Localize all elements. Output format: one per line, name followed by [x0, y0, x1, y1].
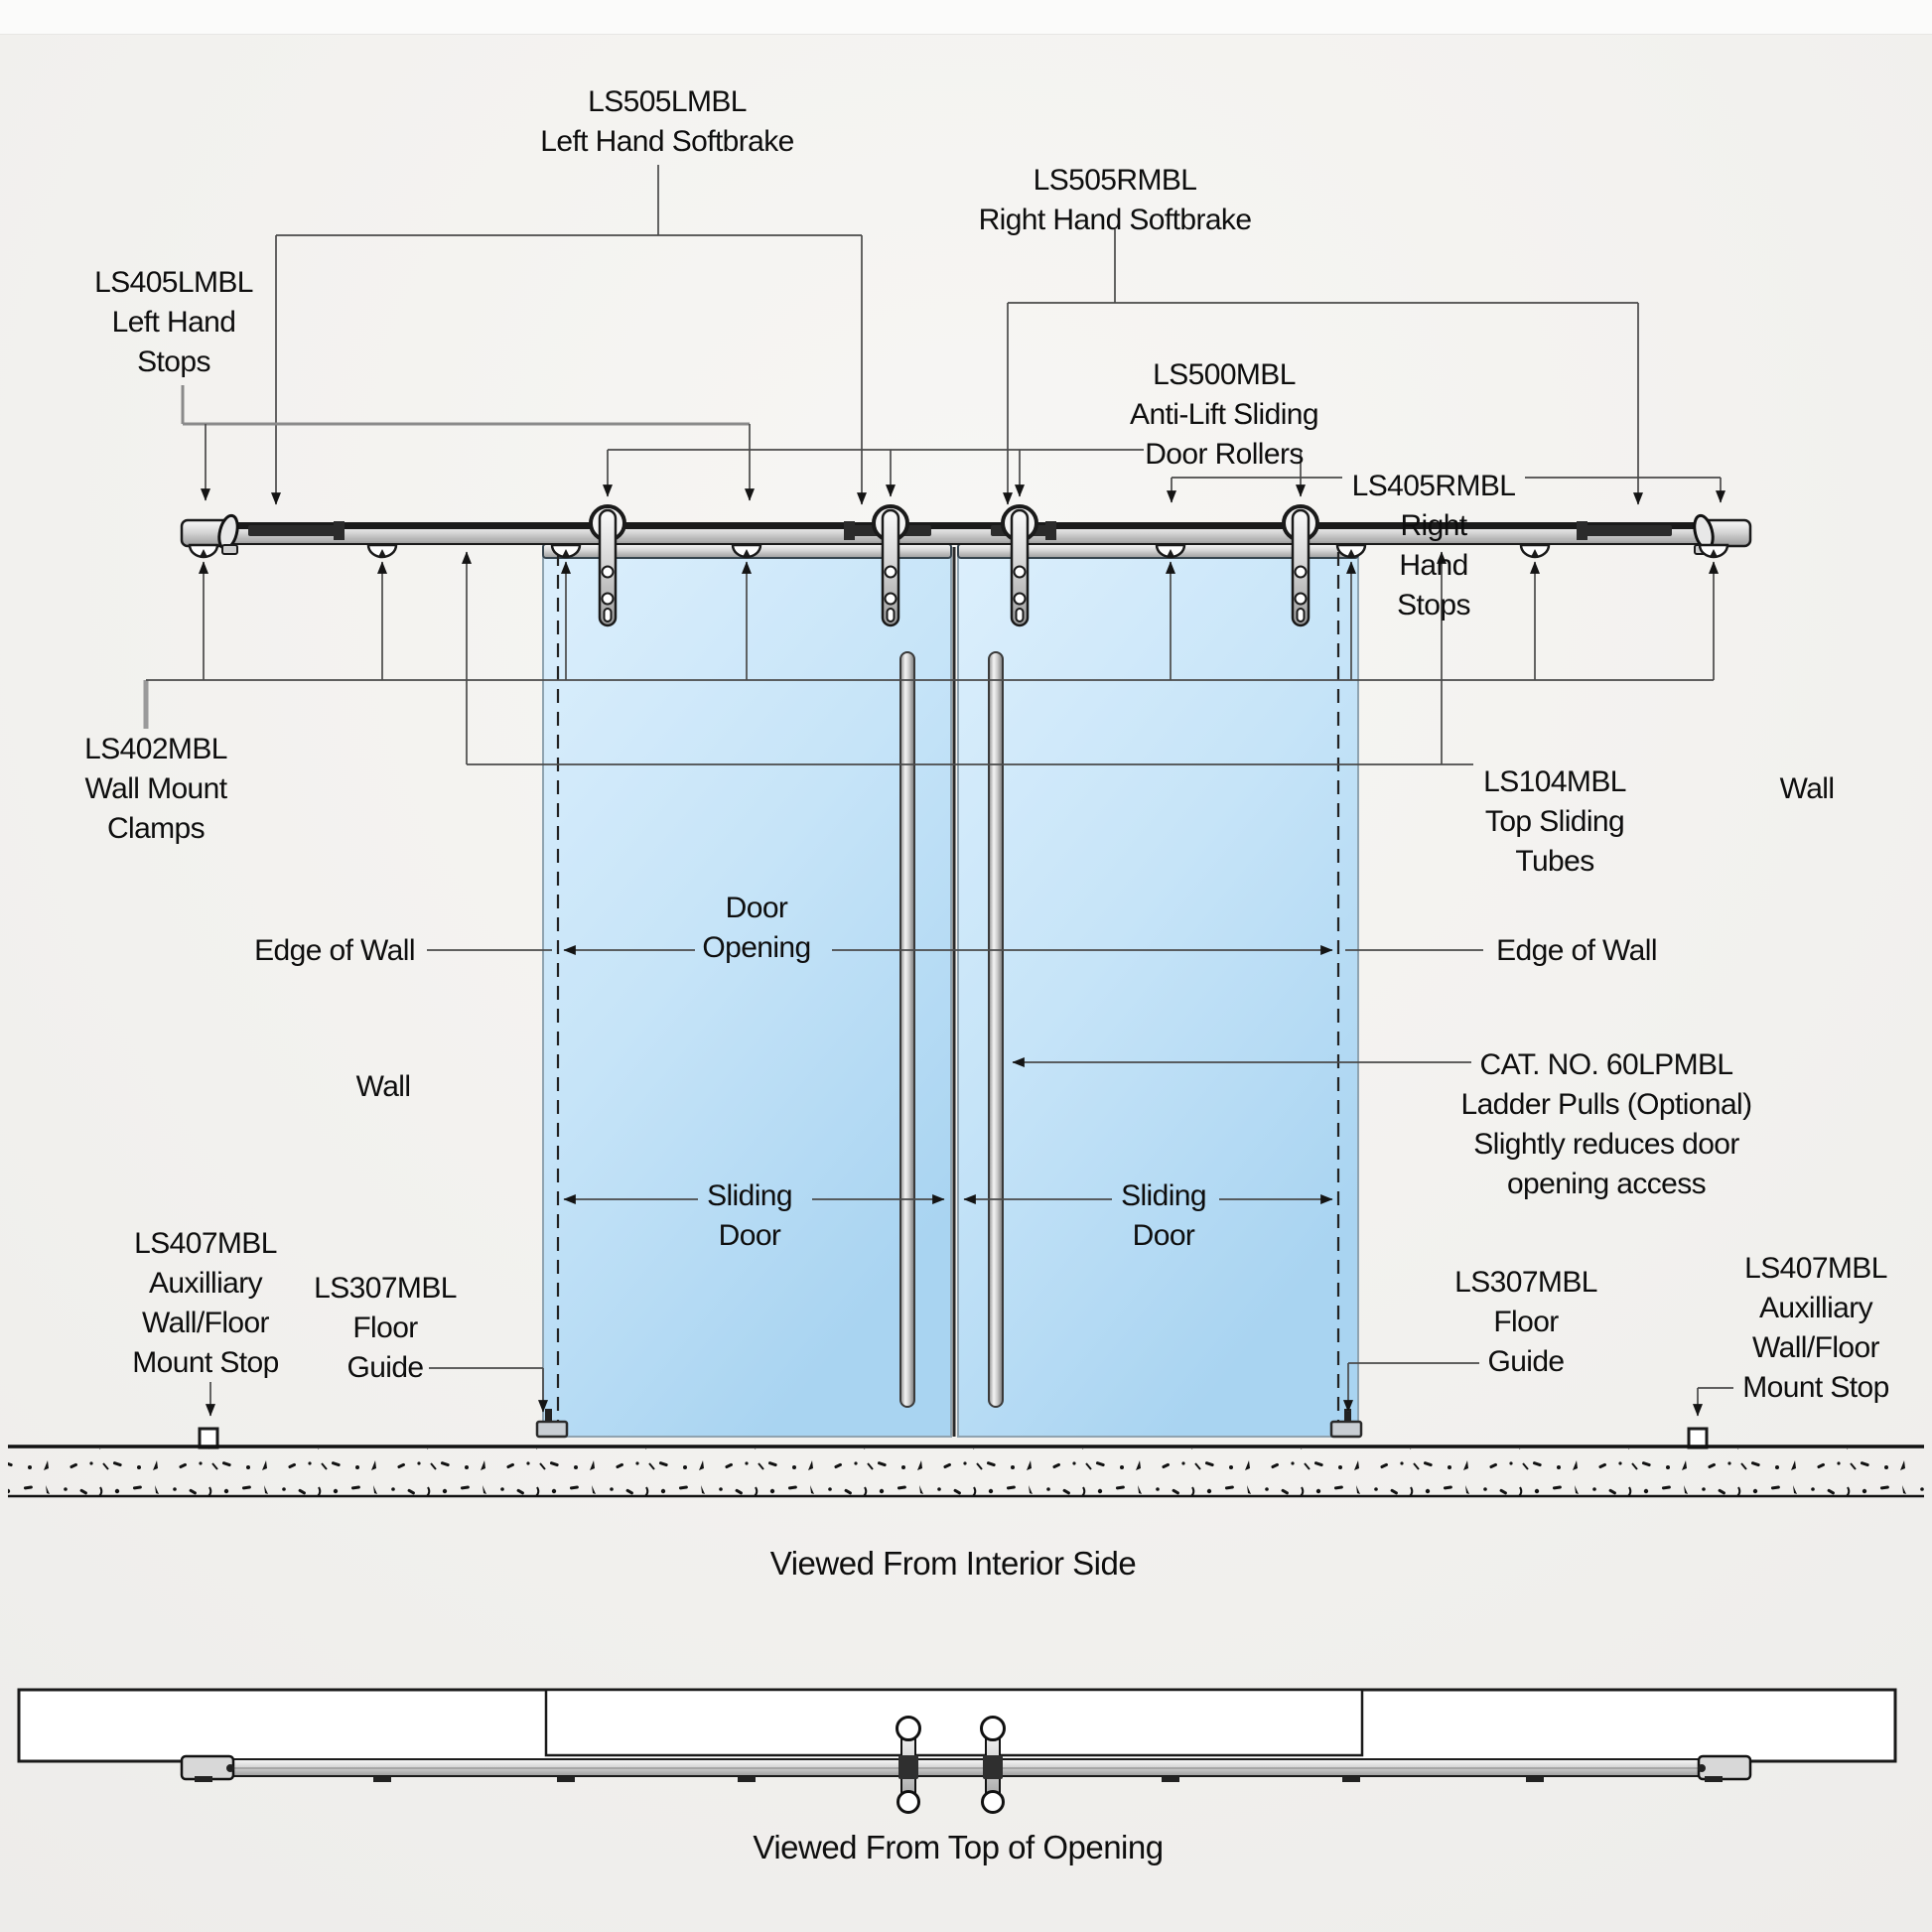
floor-guide-pin-left [545, 1409, 552, 1421]
label-ladder-pulls: CAT. NO. 60LPMBLLadder Pulls (Optional)S… [1460, 1045, 1751, 1204]
caption-interior-view: Viewed From Interior Side [770, 1545, 1136, 1583]
label-ls405-right: LS405RMBLRightHandStops [1352, 467, 1516, 625]
right-softbrake-outer [1577, 525, 1672, 536]
floor-guide-left-icon [537, 1422, 567, 1437]
label-ls500: LS500MBLAnti-Lift SlidingDoor Rollers [1130, 355, 1318, 475]
label-ls407-right: LS407MBLAuxilliaryWall/FloorMount Stop [1742, 1249, 1888, 1408]
label-edge-of-wall-right: Edge of Wall [1496, 931, 1657, 971]
floor-guide-right-icon [1331, 1422, 1361, 1437]
label-sliding-door-left: SlidingDoor [707, 1176, 792, 1256]
softbrake-tab-2 [844, 521, 855, 540]
softbrake-tab-4 [1577, 521, 1587, 540]
label-ls104: LS104MBLTop SlidingTubes [1483, 762, 1626, 882]
aux-mount-stop-right-icon [1689, 1429, 1707, 1448]
glass-doors [543, 544, 1358, 1437]
softbrake-tab-3 [1045, 521, 1056, 540]
label-ls407-left: LS407MBLAuxilliaryWall/FloorMount Stop [132, 1224, 278, 1383]
wall-clamp-icon [1521, 545, 1549, 557]
diagram-page: LS505LMBLLeft Hand Softbrake LS505RMBLRi… [0, 0, 1932, 1932]
top-view-end-cap-left [182, 1756, 233, 1779]
top-view-door-opening [546, 1690, 1362, 1755]
label-wall-left: Wall [356, 1067, 411, 1107]
aux-mount-stop-left-icon [200, 1429, 217, 1448]
label-ls307-left: LS307MBLFloorGuide [314, 1269, 457, 1388]
label-ls505-left: LS505LMBLLeft Hand Softbrake [540, 82, 793, 162]
elevation-view [8, 165, 1924, 1496]
softbrake-tab-1 [334, 521, 345, 540]
wall-clamp-icon [190, 545, 217, 557]
top-view-ladder-pull [897, 1718, 920, 1813]
label-edge-of-wall-left: Edge of Wall [254, 931, 415, 971]
top-view-end-cap-right [1699, 1756, 1750, 1779]
left-softbrake-outer [248, 525, 344, 536]
top-view-ladder-pull [982, 1718, 1005, 1813]
label-ls405-left: LS405LMBLLeft HandStops [94, 263, 253, 382]
top-view [19, 1690, 1895, 1813]
label-ls505-right: LS505RMBLRight Hand Softbrake [979, 161, 1252, 240]
caption-top-view: Viewed From Top of Opening [753, 1829, 1163, 1866]
ladder-pull-right [989, 652, 1003, 1407]
label-wall-right: Wall [1780, 769, 1835, 809]
label-door-opening: DoorOpening [702, 889, 810, 968]
ladder-pull-left [900, 652, 914, 1407]
label-sliding-door-right: SlidingDoor [1121, 1176, 1206, 1256]
wall-clamp-icon [1700, 545, 1727, 557]
wall-clamp-icon [368, 545, 396, 557]
label-ls402: LS402MBLWall MountClamps [84, 730, 227, 849]
label-ls307-right: LS307MBLFloorGuide [1454, 1263, 1597, 1382]
concrete-floor-hatch [8, 1449, 1924, 1495]
